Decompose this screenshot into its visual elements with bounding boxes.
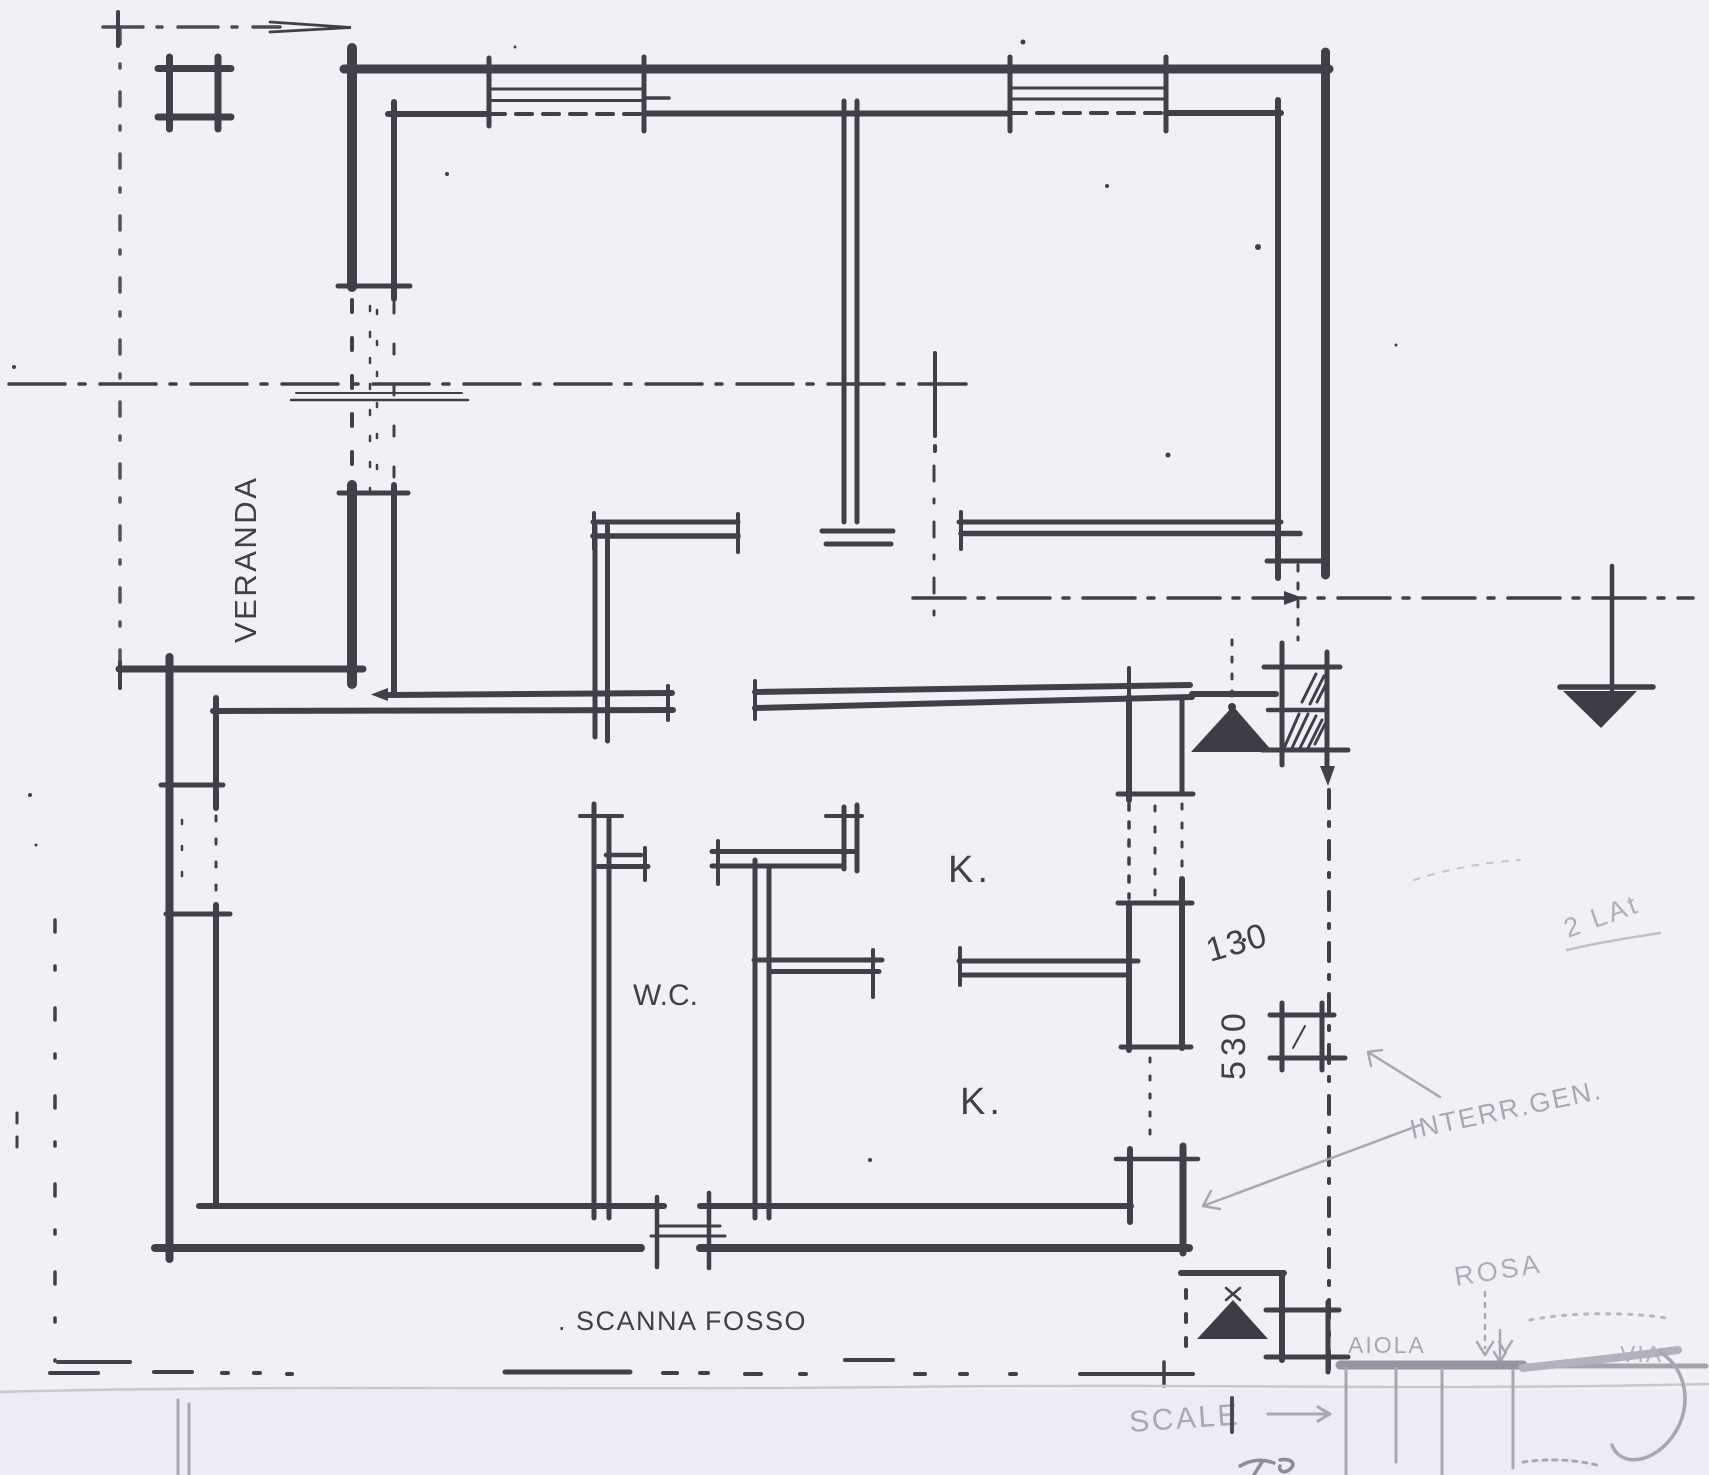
svg-text:530: 530: [1215, 1008, 1253, 1080]
svg-text:VERANDA: VERANDA: [228, 476, 263, 643]
svg-text:K.: K.: [960, 1081, 1004, 1123]
svg-text:. SCANNA FOSSO: . SCANNA FOSSO: [558, 1306, 807, 1336]
svg-text:AIOLA: AIOLA: [1348, 1332, 1426, 1358]
svg-text:W.C.: W.C.: [633, 979, 698, 1012]
svg-text:K.: K.: [948, 849, 992, 891]
